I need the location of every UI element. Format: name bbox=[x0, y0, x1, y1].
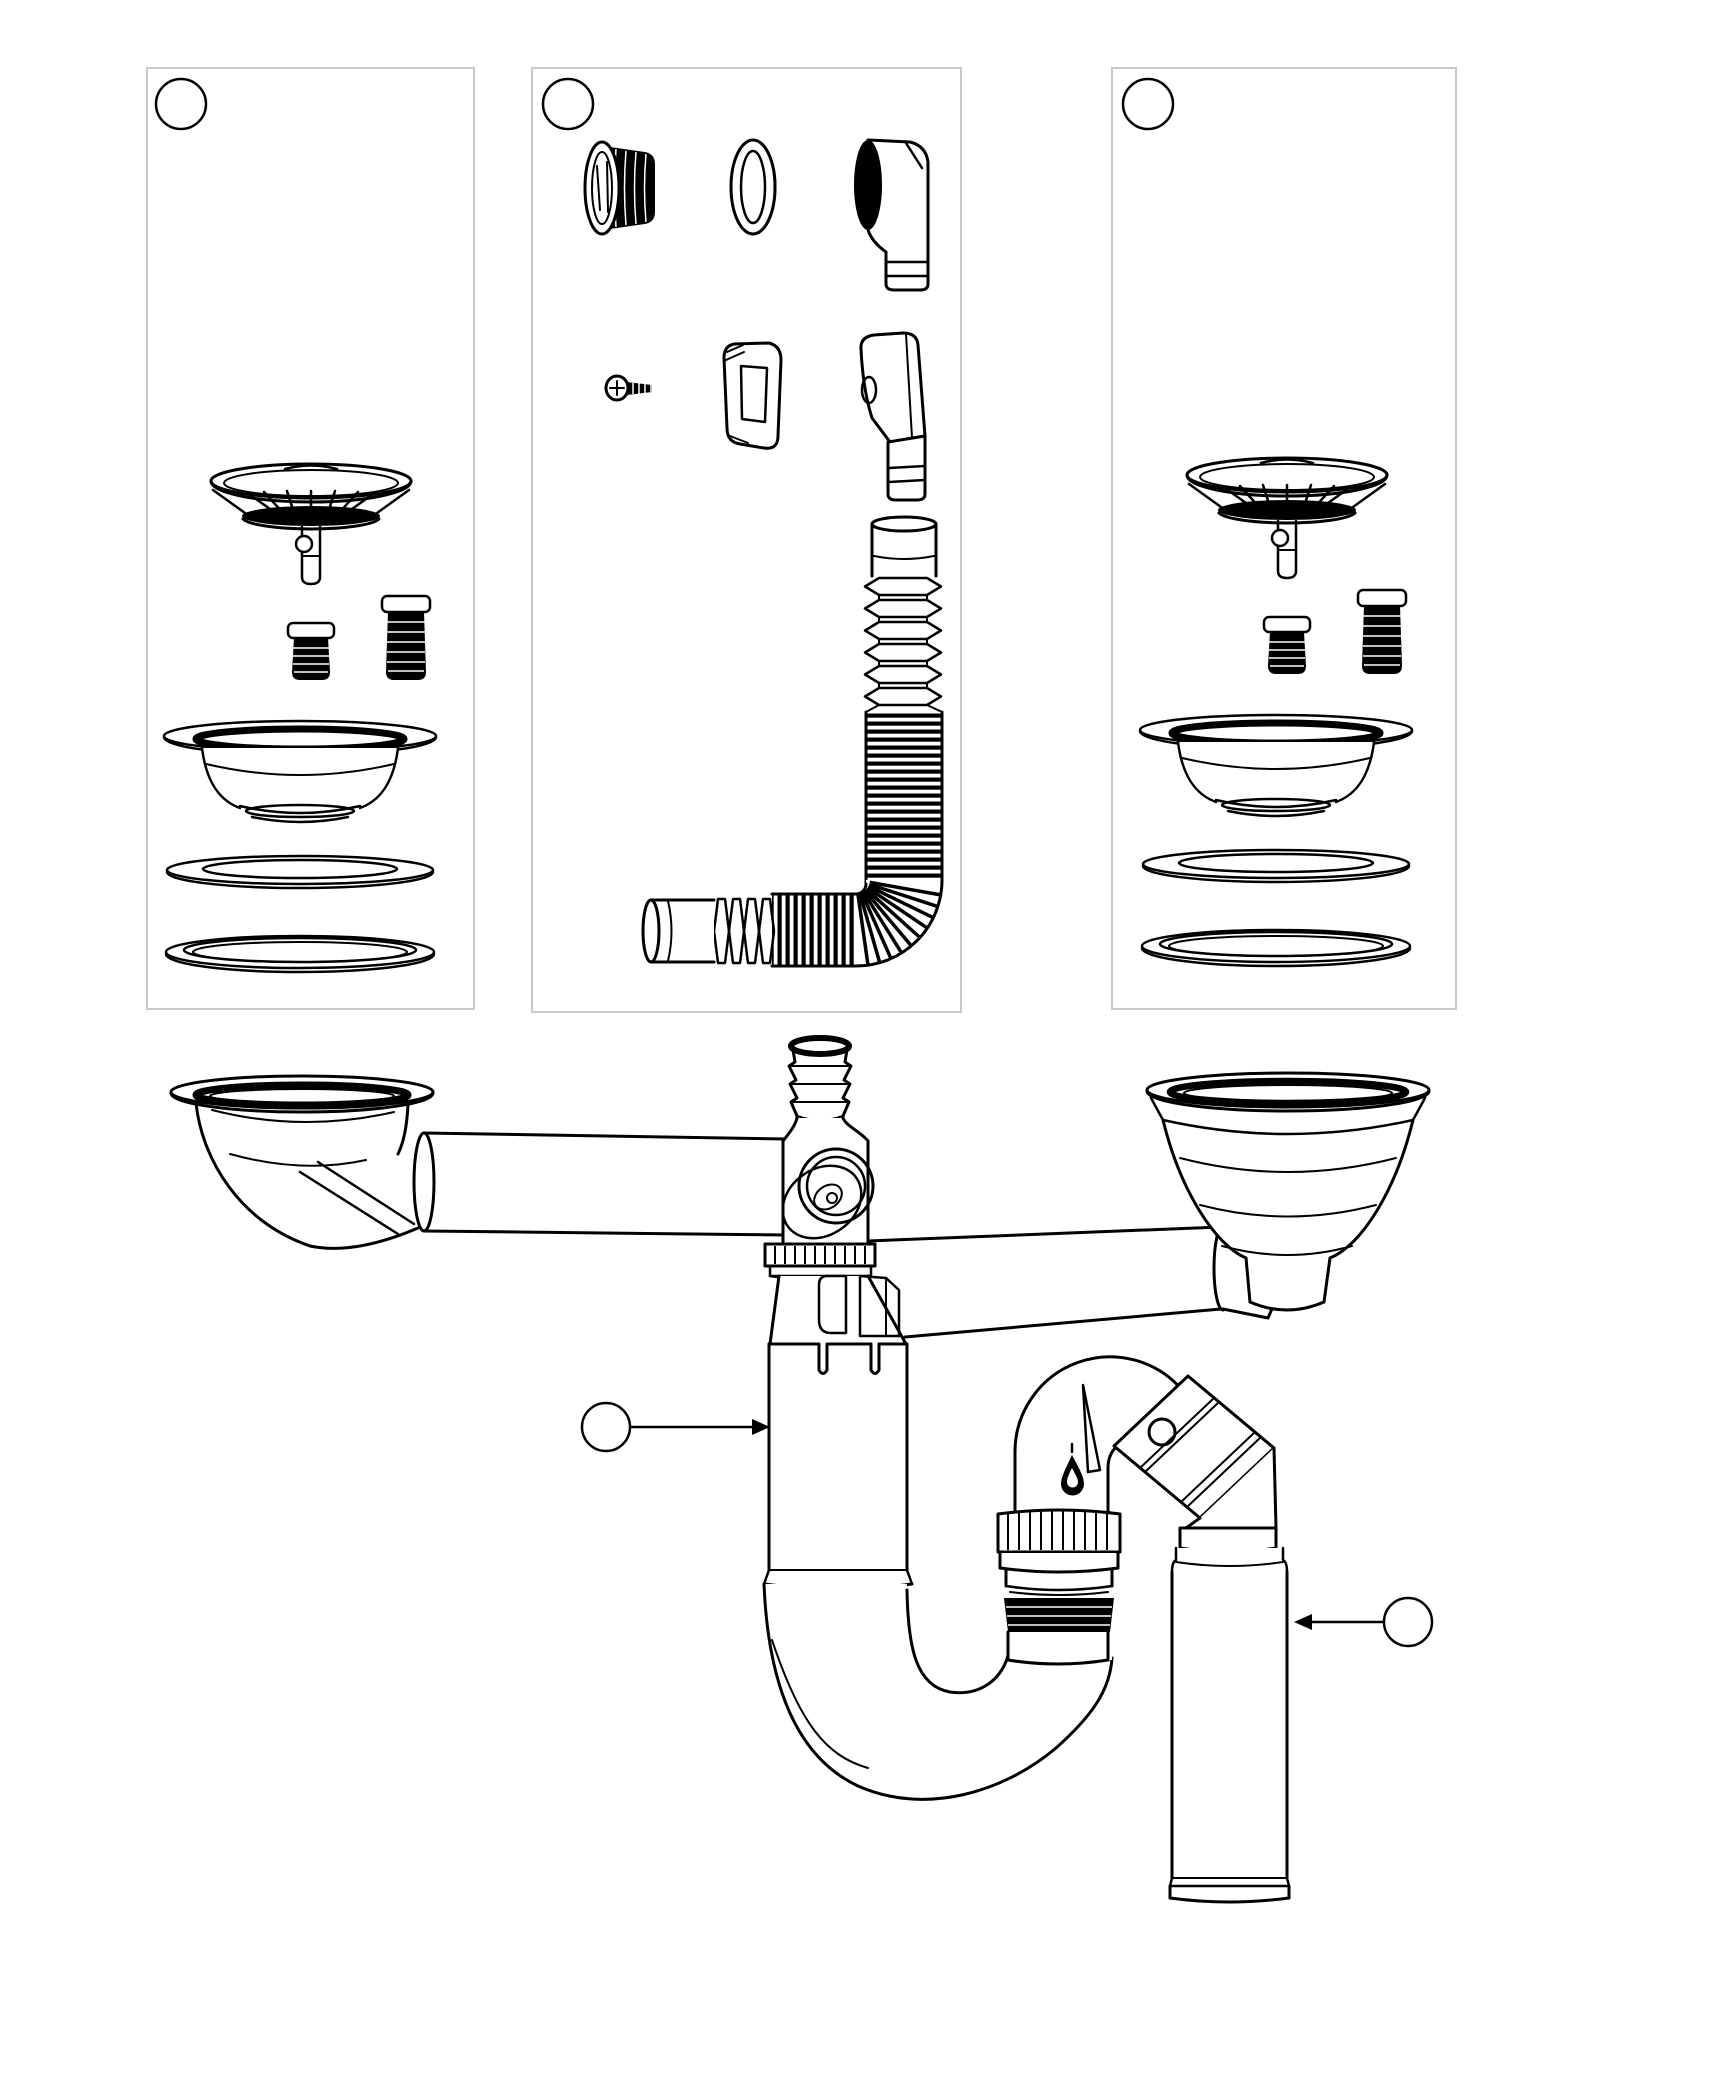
hose-bellows-top bbox=[865, 578, 942, 712]
trap-upper-body bbox=[770, 1276, 906, 1344]
callout-2-arrowhead bbox=[752, 1419, 770, 1435]
main-assembly bbox=[171, 1038, 1432, 1902]
hose-end-fitting bbox=[643, 900, 714, 962]
exploded-parts-diagram bbox=[0, 0, 1720, 2096]
elbow-fitting bbox=[854, 140, 928, 290]
hose-bend bbox=[856, 880, 942, 966]
flexible-hose bbox=[643, 517, 942, 966]
callout-2-badge bbox=[582, 1403, 630, 1451]
callout-2 bbox=[582, 1403, 770, 1451]
callout-1-arrowhead bbox=[1294, 1614, 1312, 1630]
threaded-plug bbox=[585, 142, 655, 234]
union-nut bbox=[998, 1509, 1120, 1572]
left-drain-bowl bbox=[171, 1076, 434, 1248]
strainer-kit-right bbox=[1140, 458, 1412, 966]
hose-fine-corrugation-horizontal bbox=[772, 894, 856, 966]
machine-screw bbox=[606, 376, 652, 400]
strainer-kit-left bbox=[164, 464, 436, 972]
tee-body bbox=[769, 1118, 876, 1253]
pipe-left bbox=[424, 1133, 788, 1235]
union-joint bbox=[1004, 1568, 1114, 1664]
dishwasher-elbow-kit bbox=[585, 140, 942, 966]
panel-left-badge bbox=[156, 79, 206, 129]
panel-middle-badge bbox=[543, 79, 593, 129]
outlet-clamp bbox=[861, 333, 925, 500]
collar-clamp bbox=[724, 343, 781, 448]
trap-body-cylinder bbox=[764, 1344, 912, 1596]
diagram-page bbox=[0, 0, 1720, 2096]
barbed-inlet-rim bbox=[791, 1038, 849, 1054]
panel-right-badge bbox=[1123, 79, 1173, 129]
callout-1-badge bbox=[1384, 1598, 1432, 1646]
hose-fine-corrugation-vertical bbox=[866, 712, 942, 880]
tee-slip-nut bbox=[765, 1244, 875, 1280]
hose-bellows-end bbox=[714, 899, 774, 963]
callout-1 bbox=[1294, 1598, 1432, 1646]
tailpipe bbox=[1170, 1548, 1289, 1902]
washer-ring bbox=[731, 140, 775, 234]
